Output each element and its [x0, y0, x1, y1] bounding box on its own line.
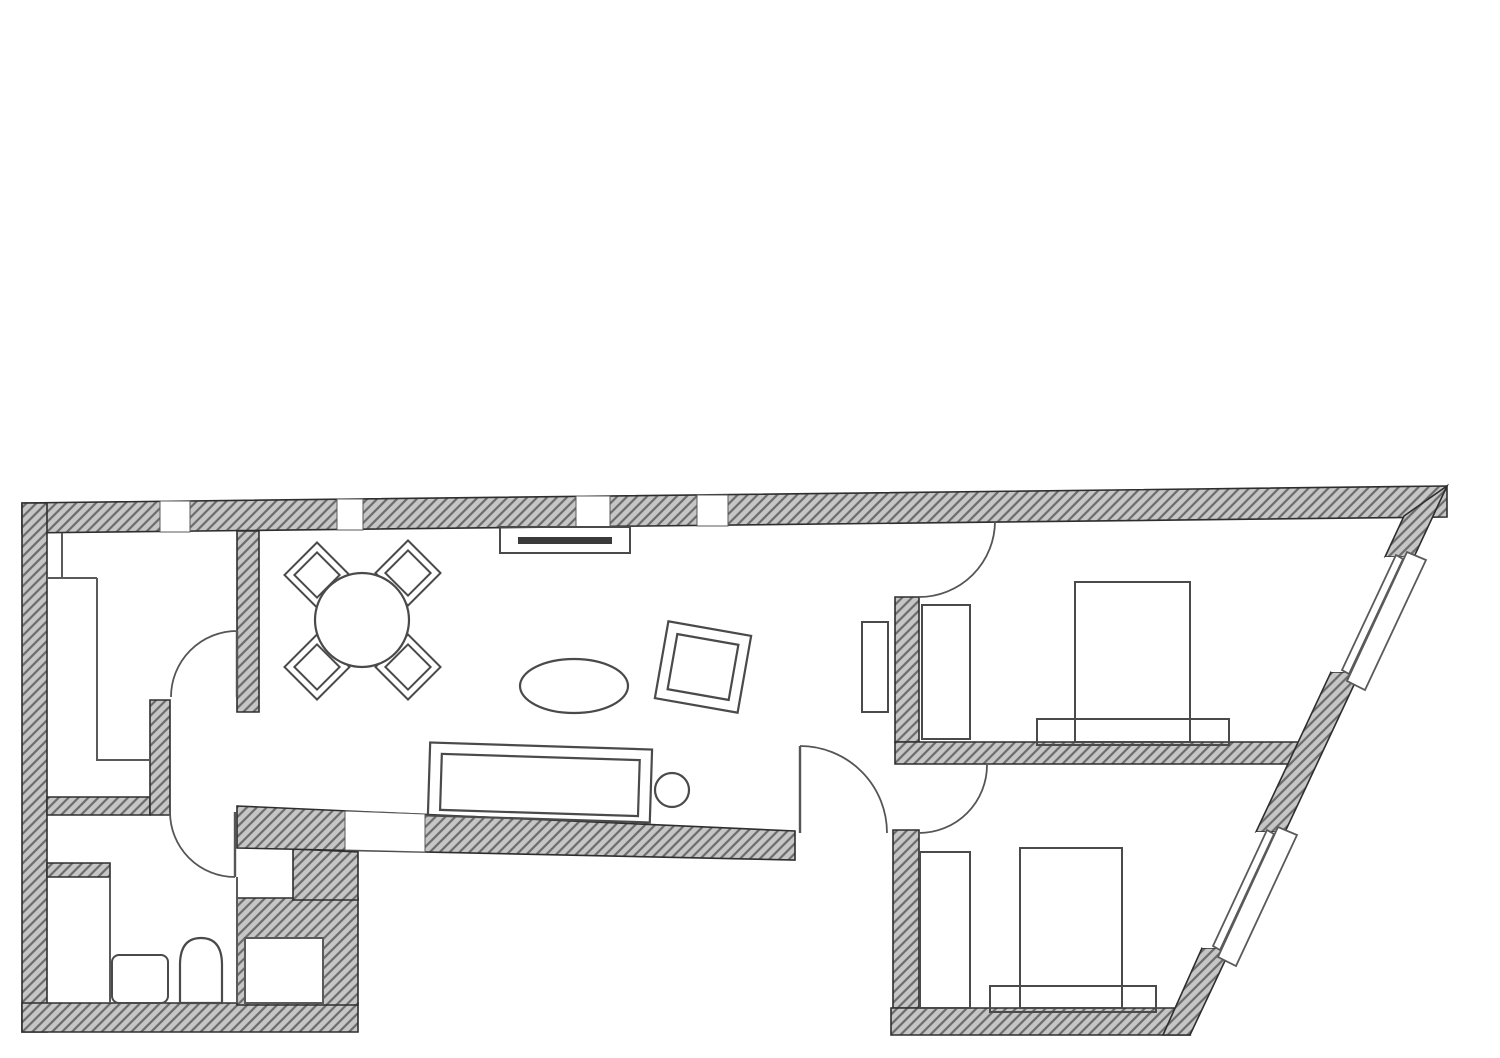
bottom-left-wall: [22, 1003, 358, 1032]
bath-top-stub: [47, 863, 110, 877]
window-top-4: [697, 495, 728, 526]
window-top-1: [160, 501, 190, 532]
floor-plan-page: [0, 0, 1500, 1058]
room-a-hall-wall: [150, 700, 170, 815]
room-a-right-wall: [237, 531, 259, 712]
window-living-bottom: [345, 811, 425, 852]
bedroom-left-wall-upper: [895, 597, 919, 742]
left-wall: [22, 503, 47, 1032]
dining-table: [315, 573, 409, 667]
room-a-bottom-wall: [47, 797, 150, 815]
window-top-3: [576, 496, 610, 527]
sideboard-shelf: [518, 537, 612, 544]
floor-plan-drawing: [0, 0, 1500, 1058]
window-top-2: [337, 499, 363, 530]
bedroom-left-wall-lower: [893, 830, 919, 1008]
wall-niche: [245, 938, 323, 1003]
bath-step-mass: [293, 849, 358, 900]
